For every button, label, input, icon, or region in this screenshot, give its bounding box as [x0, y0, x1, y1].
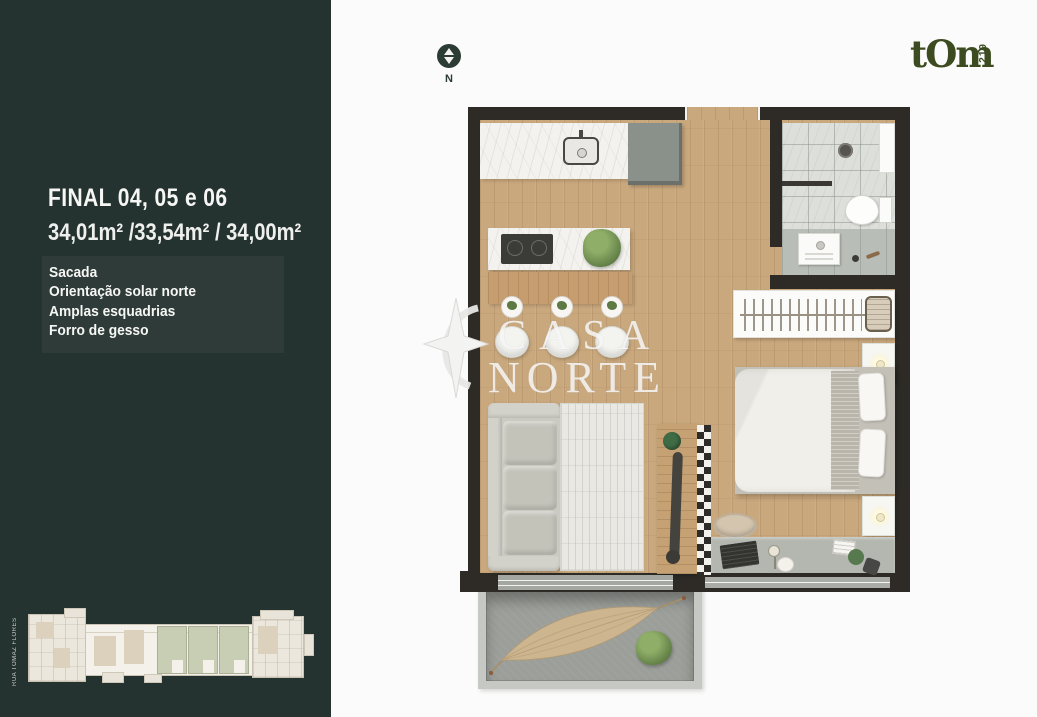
compass-icon: [437, 44, 461, 68]
feature-text: Sacada: [49, 264, 97, 283]
sofa: [488, 403, 560, 571]
mini-plan-balcony-bump: [102, 672, 124, 683]
cooktop: [501, 234, 553, 264]
mini-plan-room-patch: [94, 636, 116, 666]
console-board: [669, 452, 683, 562]
bathroom-wall: [770, 120, 782, 247]
feature-text: Forro de gesso: [49, 322, 149, 341]
desk-vase: [777, 557, 794, 572]
compass-north-label: N: [436, 73, 462, 85]
mini-plan-room-patch: [124, 630, 144, 664]
balcony-floor: [486, 591, 694, 681]
feature-item: Amplas esquadrias: [49, 303, 291, 322]
mini-plan-room-patch: [54, 648, 70, 668]
kitchen-counter: [480, 123, 628, 179]
desk: [711, 537, 895, 573]
feature-item: Orientação solar norte: [49, 283, 291, 302]
bed: [735, 367, 895, 494]
features-panel: Sacada Orientação solar norte Amplas esq…: [42, 256, 284, 353]
pouf: [713, 513, 757, 539]
refrigerator: [628, 123, 682, 185]
laptop: [720, 541, 760, 570]
wall-corner-block: [460, 571, 469, 592]
entrance-door-opening: [687, 107, 758, 120]
sofa-back: [488, 403, 502, 571]
mini-plan-unit-notch: [234, 660, 245, 673]
nightstand: [862, 496, 895, 536]
feature-item: Forro de gesso: [49, 322, 291, 341]
mini-plan-highlighted-unit-05: [188, 626, 218, 674]
sofa-armrest: [488, 556, 560, 571]
green-tray: [848, 549, 864, 565]
wood-console: [657, 424, 697, 574]
mini-plan-balcony-bump: [260, 610, 294, 620]
page: FINAL 04, 05 e 06 34,01m² /33,54m² / 34,…: [0, 0, 1037, 717]
feature-item: Sacada: [49, 264, 291, 283]
place-setting: [501, 296, 523, 318]
pillow: [858, 372, 886, 421]
bathroom-niche: [879, 123, 895, 173]
balcony-sliding-door: [498, 575, 673, 590]
mini-plan-highlighted-unit-04: [157, 626, 187, 674]
sofa-cushion: [503, 511, 557, 555]
door-jamb: [685, 107, 687, 120]
place-setting: [551, 296, 573, 318]
sofa-cushion: [503, 421, 557, 465]
bathroom-accessory: [852, 255, 859, 262]
table-lamp: [868, 505, 891, 528]
mini-plan-highlighted-unit-06: [219, 626, 249, 674]
dark-vase: [862, 557, 881, 576]
mini-plan-balcony-bump: [64, 608, 86, 618]
sidebar: FINAL 04, 05 e 06 34,01m² /33,54m² / 34,…: [0, 0, 331, 717]
unit-title: FINAL 04, 05 e 06: [48, 184, 262, 213]
brand-number: 219: [978, 43, 989, 63]
unit-areas: 34,01m² /33,54m² / 34,00m²: [48, 219, 350, 247]
features-list: Sacada Orientação solar norte Amplas esq…: [42, 256, 284, 341]
mini-plan-room-patch: [36, 622, 54, 638]
divider-shelf: [697, 425, 711, 575]
toilet: [845, 195, 879, 225]
mini-plan-unit-notch: [203, 660, 214, 673]
console-cushion: [663, 432, 681, 450]
kitchen-sink: [563, 137, 599, 165]
brand-logo: tOm 219: [910, 34, 1002, 82]
shower-partition: [782, 181, 832, 186]
bathroom-sink: [798, 233, 840, 265]
wardrobe: [733, 290, 895, 338]
rug: [560, 403, 644, 571]
pillow: [858, 428, 886, 477]
door-jamb: [758, 107, 760, 120]
place-setting: [601, 296, 623, 318]
bedroom-window: [705, 577, 890, 588]
mini-plan-balcony-bump: [144, 674, 162, 683]
feature-text: Amplas esquadrias: [49, 303, 175, 322]
compass: N: [436, 44, 462, 85]
sofa-armrest: [488, 403, 560, 418]
basket: [865, 296, 892, 332]
feature-text: Orientação solar norte: [49, 283, 196, 302]
dining-chair: [495, 326, 529, 358]
wardrobe-rail: [740, 314, 866, 316]
balcony: [478, 583, 702, 689]
mini-plan: RUA TOMAZ FLORES: [14, 608, 316, 692]
desk-lamp: [768, 545, 780, 557]
unit-areas-text: 34,01m² /33,54m² / 34,00m²: [48, 219, 301, 247]
street-label: RUA TOMAZ FLORES: [12, 616, 18, 686]
floorplan-unit: [468, 107, 910, 592]
knit-blanket: [831, 371, 859, 490]
toilet-cistern: [879, 197, 892, 223]
shower-head: [838, 143, 853, 158]
mini-plan-balcony-bump: [304, 634, 314, 656]
dining-chair: [595, 326, 629, 358]
bathroom-wall: [770, 275, 910, 289]
console-vase: [666, 550, 680, 564]
dining-chair: [545, 326, 579, 358]
unit-title-text: FINAL 04, 05 e 06: [48, 184, 228, 213]
mini-plan-room-patch: [258, 626, 278, 654]
mini-plan-unit-notch: [172, 660, 183, 673]
sofa-cushion: [503, 466, 557, 510]
